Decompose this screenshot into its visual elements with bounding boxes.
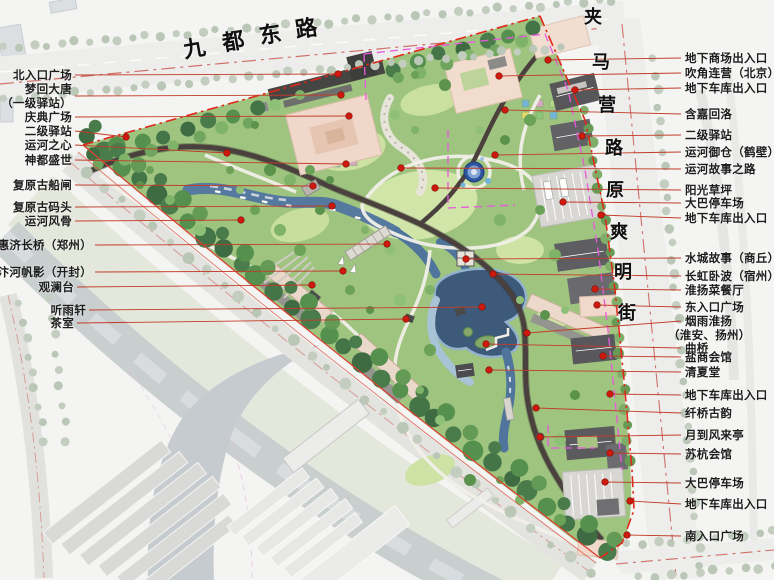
site-plan-drawing bbox=[0, 0, 774, 580]
bus-parking-south bbox=[562, 468, 625, 520]
park-master-plan: 北入口广场梦回大唐（一级驿站）庆典广场二级驿站运河之心神都盛世复原古船闸复原古码… bbox=[0, 0, 774, 580]
shuicheng-square bbox=[457, 251, 474, 266]
